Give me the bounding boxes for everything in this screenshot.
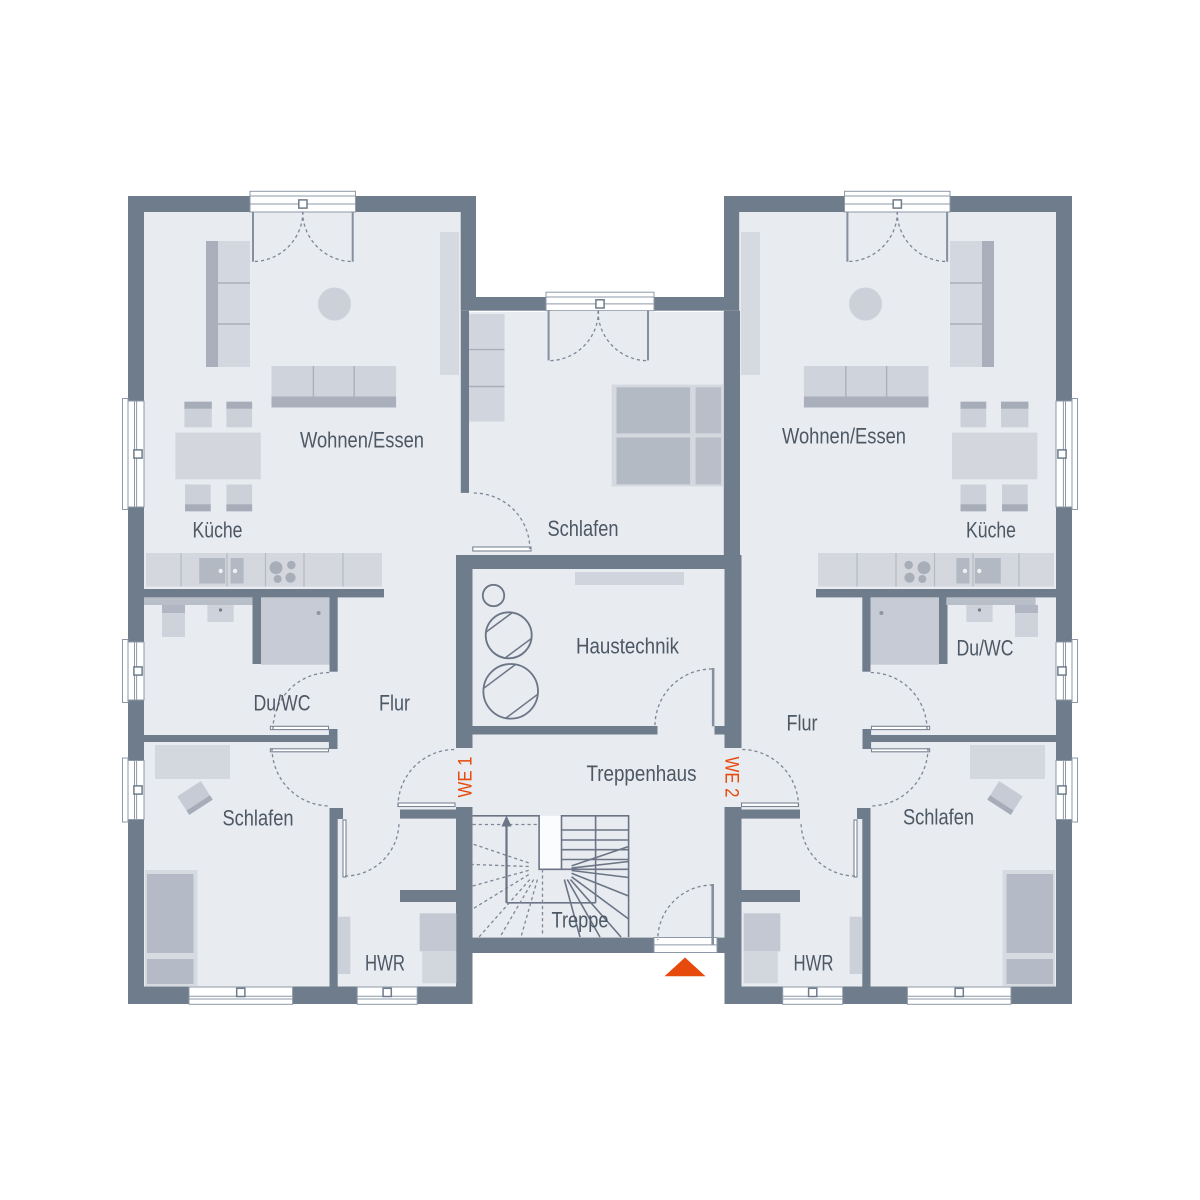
svg-text:Flur: Flur (787, 711, 818, 736)
svg-text:Küche: Küche (966, 518, 1016, 543)
svg-text:Schlafen: Schlafen (548, 516, 619, 541)
svg-text:Haustechnik: Haustechnik (576, 634, 680, 659)
svg-text:Treppe: Treppe (552, 908, 609, 933)
svg-text:Flur: Flur (379, 691, 410, 716)
svg-text:WE 1: WE 1 (456, 757, 477, 798)
svg-text:Du/WC: Du/WC (957, 636, 1014, 661)
svg-text:Schlafen: Schlafen (223, 806, 294, 831)
svg-text:Küche: Küche (193, 518, 243, 543)
svg-text:Treppenhaus: Treppenhaus (587, 761, 697, 786)
svg-text:Wohnen/Essen: Wohnen/Essen (782, 424, 906, 449)
svg-text:HWR: HWR (365, 951, 405, 976)
svg-text:Schlafen: Schlafen (903, 805, 974, 830)
svg-text:Du/WC: Du/WC (254, 691, 311, 716)
svg-text:WE 2: WE 2 (721, 757, 742, 798)
svg-text:HWR: HWR (794, 951, 834, 976)
svg-text:Wohnen/Essen: Wohnen/Essen (300, 428, 424, 453)
